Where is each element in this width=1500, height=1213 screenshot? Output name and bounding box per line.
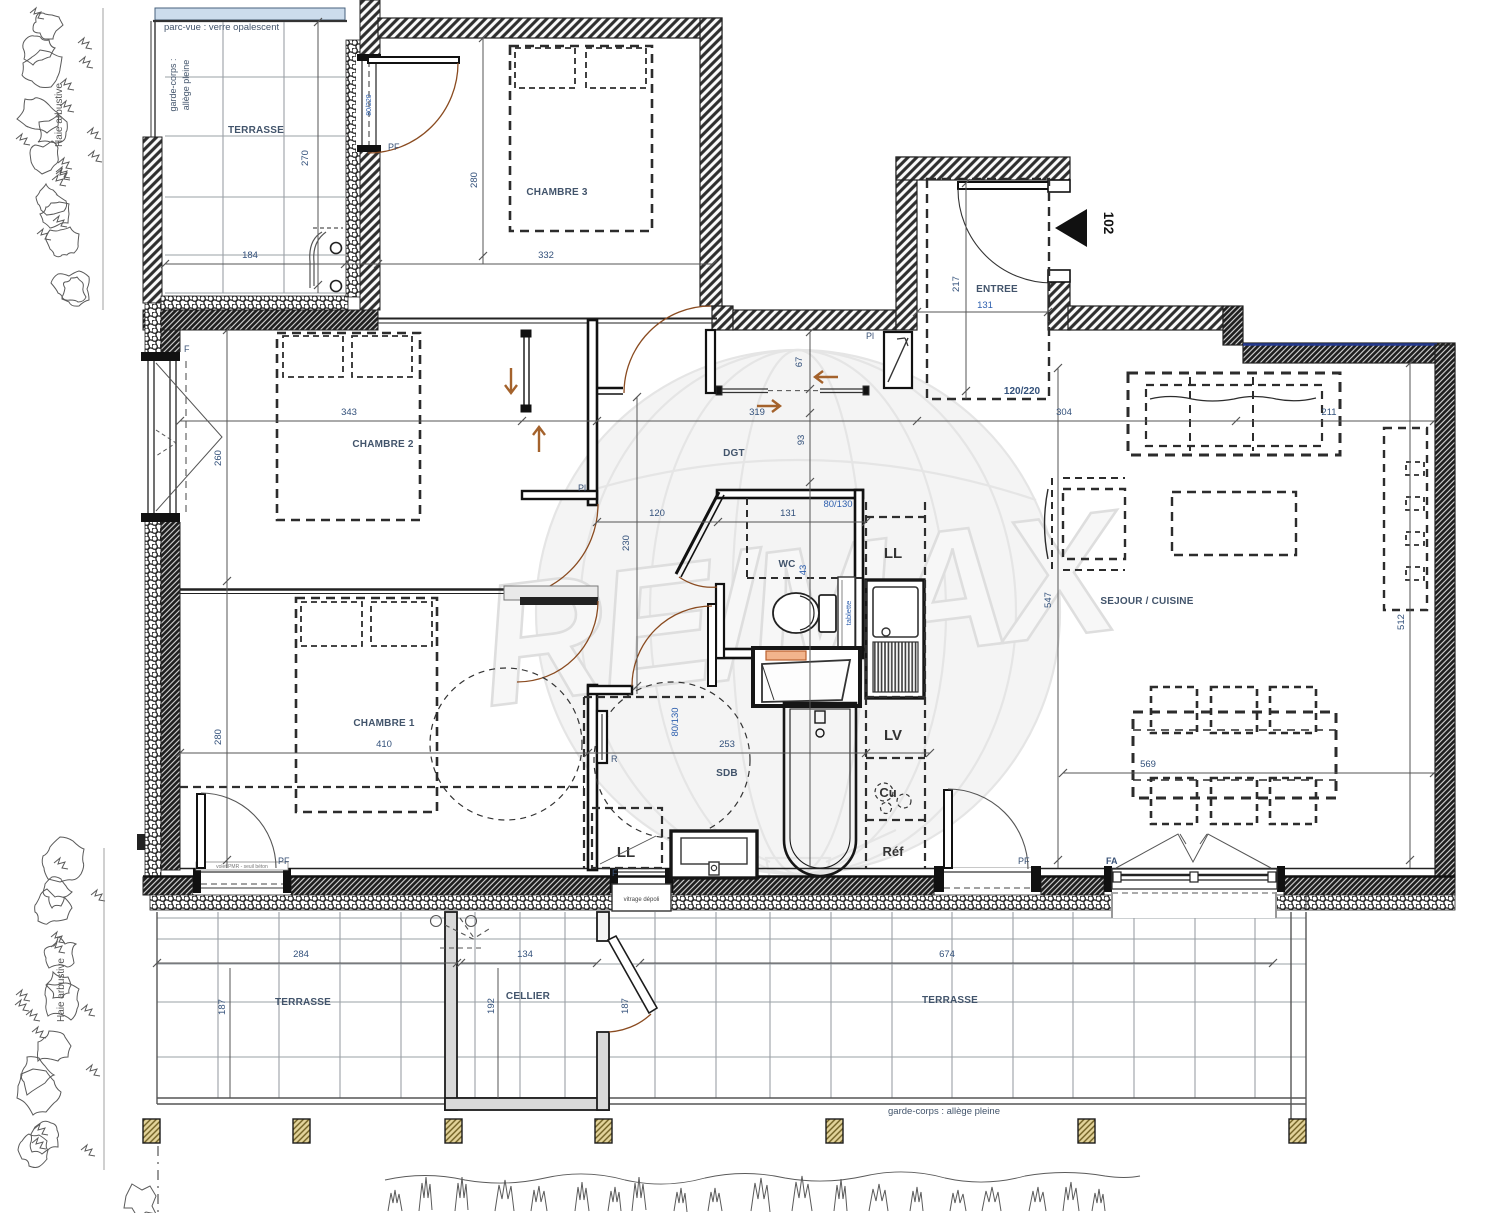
svg-text:F: F — [184, 344, 190, 354]
svg-text:343: 343 — [341, 407, 357, 418]
svg-text:270: 270 — [300, 150, 311, 166]
svg-text:187: 187 — [620, 998, 631, 1014]
svg-text:CHAMBRE 3: CHAMBRE 3 — [526, 187, 587, 198]
svg-text:Haie arbustive: Haie arbustive — [56, 958, 67, 1022]
svg-text:garde-corps : allège pleine: garde-corps : allège pleine — [888, 1106, 1000, 1117]
svg-text:volet PMR - seuil béton: volet PMR - seuil béton — [216, 864, 268, 870]
svg-text:Cu: Cu — [879, 785, 896, 800]
svg-text:93: 93 — [796, 435, 807, 446]
svg-text:garde-corps :: garde-corps : — [168, 58, 178, 111]
svg-text:547: 547 — [1043, 592, 1054, 608]
svg-text:410: 410 — [376, 739, 392, 750]
svg-text:332: 332 — [538, 250, 554, 261]
svg-text:184: 184 — [242, 250, 258, 261]
svg-text:80/130: 80/130 — [670, 707, 681, 736]
svg-text:WC: WC — [778, 559, 795, 570]
svg-text:SEJOUR / CUISINE: SEJOUR / CUISINE — [1100, 596, 1193, 607]
svg-text:parc-vue : verre opalescent: parc-vue : verre opalescent — [164, 22, 279, 33]
svg-text:131: 131 — [780, 508, 796, 519]
svg-text:304: 304 — [1056, 407, 1072, 418]
svg-text:512: 512 — [1396, 614, 1407, 630]
svg-text:569: 569 — [1140, 759, 1156, 770]
svg-text:TERRASSE: TERRASSE — [228, 125, 284, 136]
svg-text:284: 284 — [293, 949, 309, 960]
svg-text:Haie arbustive: Haie arbustive — [54, 83, 65, 147]
svg-text:DGT: DGT — [723, 448, 745, 459]
svg-text:PF: PF — [278, 856, 290, 866]
svg-text:F: F — [612, 868, 618, 878]
svg-text:CHAMBRE 1: CHAMBRE 1 — [353, 718, 414, 729]
svg-text:217: 217 — [951, 276, 962, 292]
svg-text:253: 253 — [719, 739, 735, 750]
svg-text:LL: LL — [884, 545, 902, 562]
svg-text:R: R — [611, 754, 618, 764]
svg-text:280: 280 — [469, 172, 480, 188]
svg-text:192: 192 — [486, 998, 497, 1014]
svg-text:vitrage dépoli: vitrage dépoli — [624, 897, 660, 903]
svg-text:allège pleine: allège pleine — [181, 60, 191, 111]
svg-text:230: 230 — [621, 535, 632, 551]
svg-text:TERRASSE: TERRASSE — [275, 997, 331, 1008]
svg-text:PF: PF — [1018, 856, 1030, 866]
svg-text:120/220: 120/220 — [1004, 386, 1041, 397]
svg-text:tablette: tablette — [844, 601, 853, 626]
svg-text:187: 187 — [217, 999, 228, 1015]
svg-text:PF: PF — [388, 142, 400, 152]
svg-text:CELLIER: CELLIER — [506, 991, 551, 1002]
svg-text:ENTREE: ENTREE — [976, 284, 1018, 295]
svg-text:CHAMBRE 2: CHAMBRE 2 — [352, 439, 413, 450]
svg-text:131: 131 — [977, 300, 993, 311]
svg-text:120: 120 — [649, 508, 665, 519]
svg-text:280: 280 — [213, 729, 224, 745]
svg-text:260: 260 — [213, 450, 224, 466]
svg-text:134: 134 — [517, 949, 533, 960]
svg-text:Réf: Réf — [883, 844, 905, 859]
svg-text:319: 319 — [749, 407, 765, 418]
svg-text:TERRASSE: TERRASSE — [922, 995, 978, 1006]
svg-text:674: 674 — [939, 949, 955, 960]
svg-text:80/220: 80/220 — [366, 94, 373, 116]
svg-text:LL: LL — [617, 844, 635, 861]
svg-text:SDB: SDB — [716, 768, 738, 779]
svg-text:Pl: Pl — [578, 483, 586, 493]
svg-text:43: 43 — [798, 565, 809, 576]
svg-text:102: 102 — [1101, 212, 1116, 235]
svg-text:Pl: Pl — [866, 331, 874, 341]
svg-text:LV: LV — [884, 727, 902, 744]
svg-text:67: 67 — [794, 357, 805, 368]
svg-text:FA: FA — [1106, 856, 1118, 866]
svg-text:80/130: 80/130 — [823, 499, 852, 510]
svg-text:211: 211 — [1321, 407, 1336, 418]
